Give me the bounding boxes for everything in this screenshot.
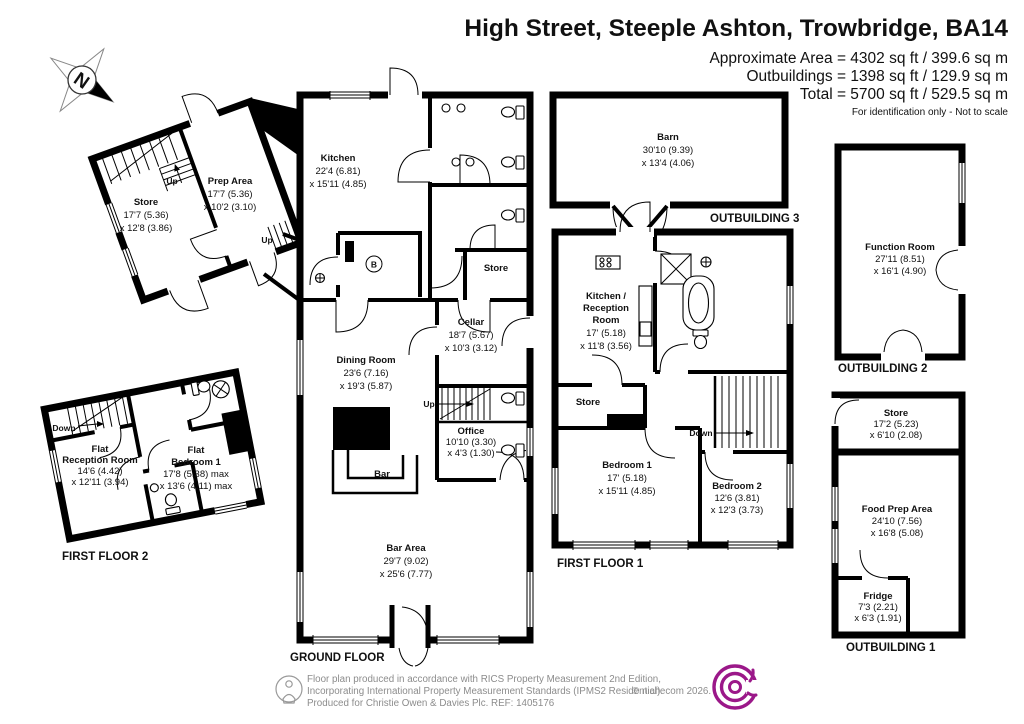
room-label: Bedroom 1 xyxy=(171,457,221,468)
room-dims: 30'10 (9.39) xyxy=(643,145,693,156)
room-dims: x 6'10 (2.08) xyxy=(870,430,923,441)
window xyxy=(296,340,305,395)
footer-line-3: Produced for Christie Owen & Davies Plc.… xyxy=(307,698,555,709)
window xyxy=(437,635,499,645)
floor-plan-page: High Street, Steeple Ashton, Trowbridge,… xyxy=(0,0,1024,724)
total-area-text: Total = 5700 sq ft / 529.5 sq m xyxy=(800,86,1008,103)
window xyxy=(296,572,305,622)
room-dims: 23'6 (7.16) xyxy=(343,368,388,379)
floor-label-ground: GROUND FLOOR xyxy=(290,652,385,664)
room-dims: 17'8 (5.38) max xyxy=(163,469,229,480)
room-dims: x 12'11 (3.94) xyxy=(71,477,128,488)
stairs-up-label: Up xyxy=(166,176,177,186)
room-dims: x 12'8 (3.86) xyxy=(120,223,173,234)
disclaimer-text: For identification only - Not to scale xyxy=(852,107,1009,118)
ob2-window xyxy=(958,163,967,203)
floor-plan-svg: High Street, Steeple Ashton, Trowbridge,… xyxy=(0,0,1024,724)
room-dims: x 6'3 (1.91) xyxy=(854,613,901,624)
room-label: Prep Area xyxy=(208,176,253,187)
room-label: Cellar xyxy=(458,317,485,328)
footer-line-2: Incorporating International Property Mea… xyxy=(307,686,663,697)
room-dims: 29'7 (9.02) xyxy=(383,556,428,567)
room-label: Reception xyxy=(583,303,629,314)
stairs-down-label: Down xyxy=(689,428,712,438)
room-dims: x 4'3 (1.30) xyxy=(447,448,494,459)
floor-label-first-1: FIRST FLOOR 1 xyxy=(557,558,644,570)
room-dims: 17' (5.18) xyxy=(607,473,647,484)
window xyxy=(551,468,560,514)
room-label: Bedroom 1 xyxy=(602,460,652,471)
room-dims: x 16'8 (5.08) xyxy=(871,528,924,539)
room-dims: 17'7 (5.36) xyxy=(207,189,252,200)
room-dims: 22'4 (6.81) xyxy=(315,166,360,177)
first-floor-1-building: Kitchen / Reception Room 17' (5.18) x 11… xyxy=(551,202,795,570)
room-label: Office xyxy=(458,426,485,437)
room-dims: 17' (5.18) xyxy=(586,328,626,339)
footer-line-1: Floor plan produced in accordance with R… xyxy=(307,674,661,685)
window xyxy=(650,540,688,550)
floor-label-outbuilding-2: OUTBUILDING 2 xyxy=(838,363,927,375)
room-dims: x 15'11 (4.85) xyxy=(598,486,655,497)
room-label: Reception Room xyxy=(62,455,137,466)
room-dims: x 11'8 (3.56) xyxy=(580,341,632,352)
approx-area-text: Approximate Area = 4302 sq ft / 399.6 sq… xyxy=(709,50,1008,67)
room-dims: x 12'3 (3.73) xyxy=(711,505,764,516)
window xyxy=(526,428,535,456)
room-label: Dining Room xyxy=(336,355,395,366)
stairs-up-label: Up xyxy=(261,235,272,245)
room-dims: 27'11 (8.51) xyxy=(875,254,925,265)
room-dims: x 19'3 (5.87) xyxy=(340,381,393,392)
window xyxy=(786,464,795,508)
room-label: Store xyxy=(484,263,508,274)
footer-copyright: © nichecom 2026. xyxy=(632,686,711,697)
room-dims: x 16'1 (4.90) xyxy=(874,266,927,277)
ff1-chimney xyxy=(607,414,643,428)
room-label: Barn xyxy=(657,132,679,143)
room-label: Function Room xyxy=(865,242,935,253)
window xyxy=(330,91,370,100)
window xyxy=(728,540,778,550)
outbuilding-2-building: Function Room 27'11 (8.51) x 16'1 (4.90)… xyxy=(838,147,967,375)
window xyxy=(313,635,378,645)
room-label: Flat xyxy=(92,444,110,455)
bar-counter-block xyxy=(333,407,390,450)
room-dims: 14'6 (4.42) xyxy=(77,466,122,477)
floor-label-outbuilding-1: OUTBUILDING 1 xyxy=(846,642,936,654)
room-dims: x 13'4 (4.06) xyxy=(642,158,695,169)
room-label: Store xyxy=(576,397,600,408)
window xyxy=(573,540,635,550)
page-title: High Street, Steeple Ashton, Trowbridge,… xyxy=(464,15,1008,42)
room-label: Store xyxy=(884,408,908,419)
room-dims: 10'10 (3.30) xyxy=(446,437,496,448)
room-dims: 12'6 (3.81) xyxy=(714,493,759,504)
room-label: Kitchen / xyxy=(586,291,626,302)
room-dims: x 10'2 (3.10) xyxy=(204,202,257,213)
room-dims: 17'2 (5.23) xyxy=(873,419,918,430)
boiler-label: B xyxy=(371,260,377,270)
stairs-up-label: Up xyxy=(423,399,434,409)
room-label: Bedroom 2 xyxy=(712,481,762,492)
ground-floor-building: B xyxy=(290,68,535,666)
room-label: Bar xyxy=(374,469,390,480)
floor-label-first-2: FIRST FLOOR 2 xyxy=(62,551,148,563)
room-dims: x 15'11 (4.85) xyxy=(309,179,366,190)
room-dims: 7'3 (2.21) xyxy=(858,602,898,613)
outbuildings-area-text: Outbuildings = 1398 sq ft / 129.9 sq m xyxy=(746,68,1008,85)
room-dims: 24'10 (7.56) xyxy=(872,516,922,527)
room-dims: x 13'6 (4.11) max xyxy=(160,481,233,492)
room-label: Kitchen xyxy=(321,153,356,164)
window xyxy=(526,572,535,627)
window xyxy=(831,487,840,521)
room-label: Bar Area xyxy=(386,543,426,554)
room-label: Store xyxy=(134,197,158,208)
room-dims: 18'7 (5.67) xyxy=(448,330,493,341)
gf-boiler-unit xyxy=(345,241,354,262)
room-label: Fridge xyxy=(863,591,892,602)
room-label: Food Prep Area xyxy=(862,504,933,515)
window xyxy=(831,529,840,563)
outbuilding-1-building: Store 17'2 (5.23) x 6'10 (2.08) Food Pre… xyxy=(831,395,962,654)
stairs-down-label: Down xyxy=(52,423,75,433)
window xyxy=(786,286,795,324)
room-dims: x 10'3 (3.12) xyxy=(445,343,498,354)
room-label: Flat xyxy=(188,445,206,456)
floor-label-outbuilding-3: OUTBUILDING 3 xyxy=(710,213,799,225)
room-dims: x 25'6 (7.77) xyxy=(380,569,433,580)
room-dims: 17'7 (5.36) xyxy=(123,210,168,221)
room-label: Room xyxy=(593,315,620,326)
